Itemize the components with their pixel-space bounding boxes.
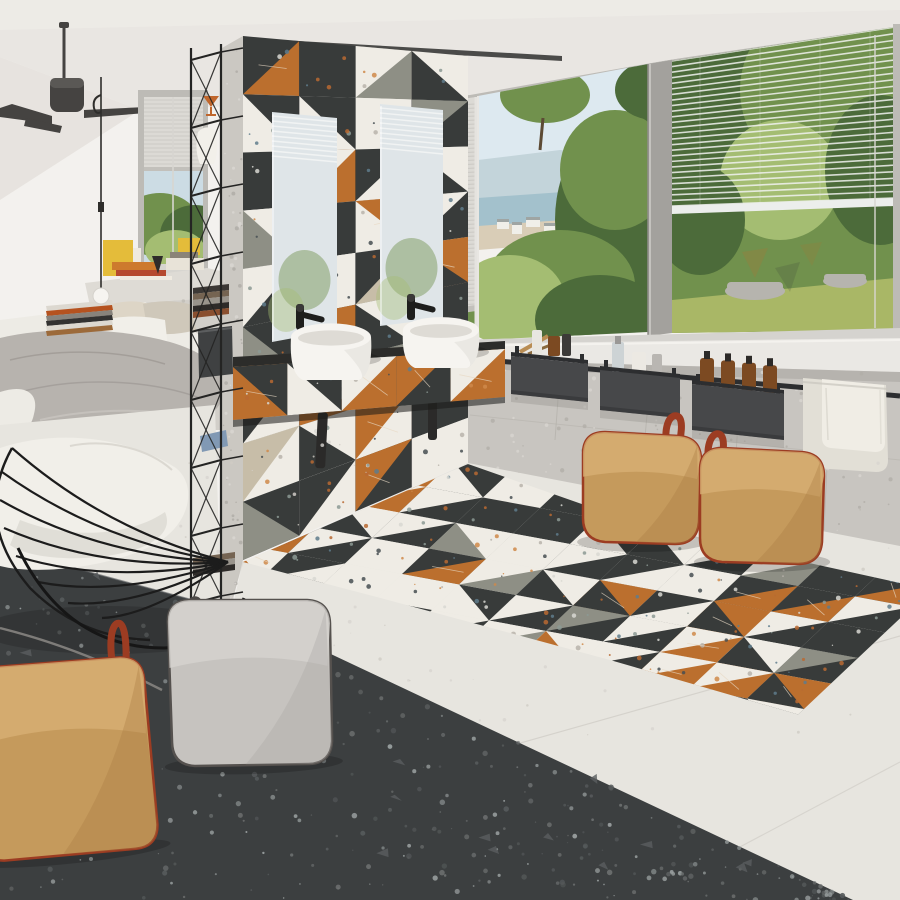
scene-svg xyxy=(0,0,900,900)
interior-photo xyxy=(0,0,900,900)
mirror xyxy=(376,104,443,326)
pouf xyxy=(159,595,343,777)
pouf xyxy=(694,434,830,572)
